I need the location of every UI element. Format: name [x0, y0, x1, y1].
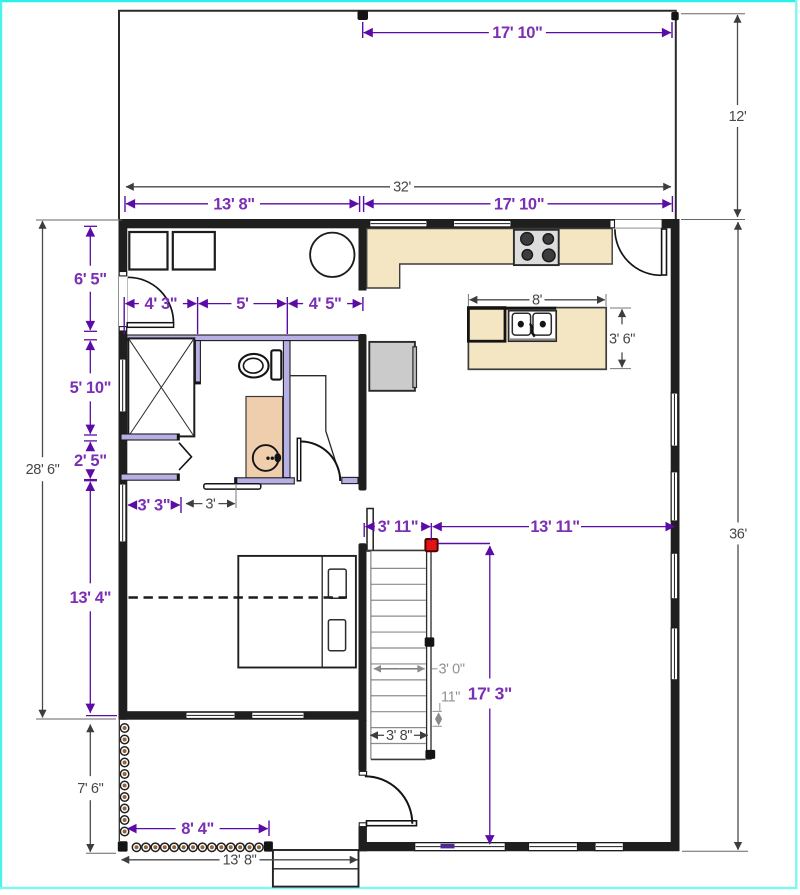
svg-text:17' 10": 17' 10" — [492, 24, 542, 42]
svg-text:13' 11": 13' 11" — [530, 518, 579, 536]
svg-text:6' 5": 6' 5" — [74, 270, 107, 288]
svg-text:3' 3": 3' 3" — [138, 497, 171, 515]
svg-text:8': 8' — [532, 293, 543, 309]
svg-text:8' 4": 8' 4" — [181, 820, 214, 838]
svg-text:13' 4": 13' 4" — [70, 589, 111, 607]
svg-text:3' 8": 3' 8" — [386, 728, 412, 744]
svg-text:3' 0": 3' 0" — [439, 662, 465, 678]
svg-text:2' 5": 2' 5" — [74, 452, 107, 470]
svg-text:5': 5' — [236, 295, 249, 313]
svg-text:4' 5": 4' 5" — [309, 295, 342, 313]
svg-text:3' 11": 3' 11" — [378, 518, 419, 536]
svg-text:11": 11" — [441, 690, 460, 706]
svg-text:13' 8": 13' 8" — [213, 195, 254, 213]
svg-text:7' 6": 7' 6" — [77, 781, 103, 797]
svg-text:4' 3": 4' 3" — [145, 295, 178, 313]
svg-text:3' 6": 3' 6" — [609, 331, 635, 347]
svg-text:12': 12' — [729, 109, 747, 125]
svg-text:28' 6": 28' 6" — [26, 462, 60, 478]
svg-text:5' 10": 5' 10" — [70, 379, 111, 397]
svg-text:36': 36' — [729, 526, 747, 542]
svg-text:17' 10": 17' 10" — [494, 195, 544, 213]
svg-text:3': 3' — [205, 497, 216, 513]
svg-text:17' 3": 17' 3" — [468, 683, 512, 703]
svg-text:13' 8": 13' 8" — [223, 853, 257, 869]
svg-text:32': 32' — [393, 180, 411, 196]
